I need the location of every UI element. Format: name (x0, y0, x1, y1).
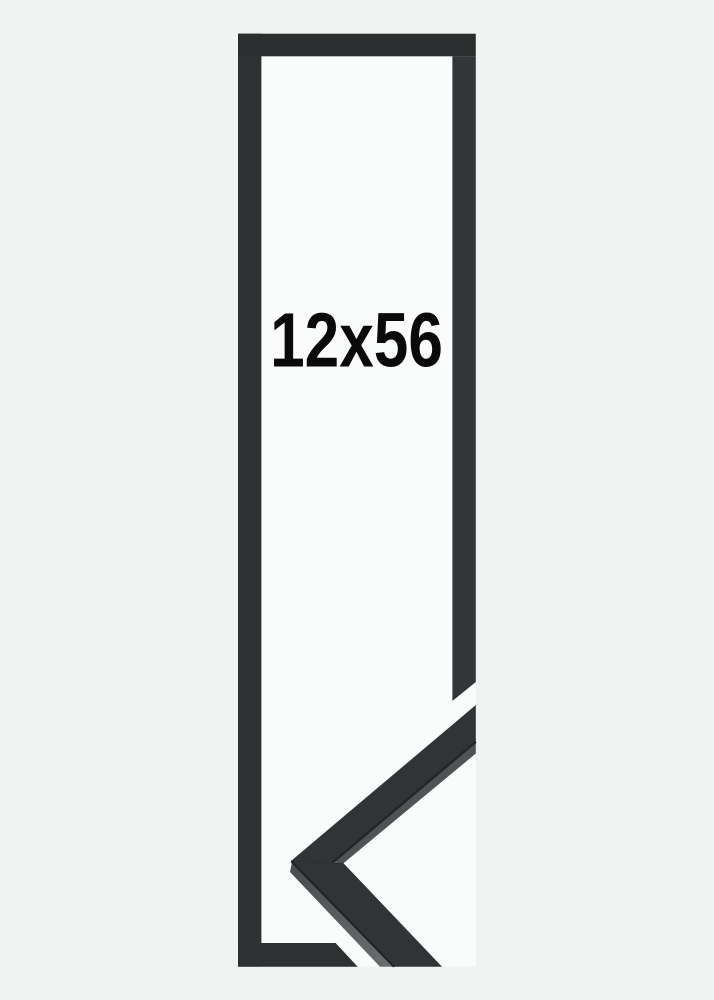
svg-text:12x56: 12x56 (270, 297, 443, 383)
